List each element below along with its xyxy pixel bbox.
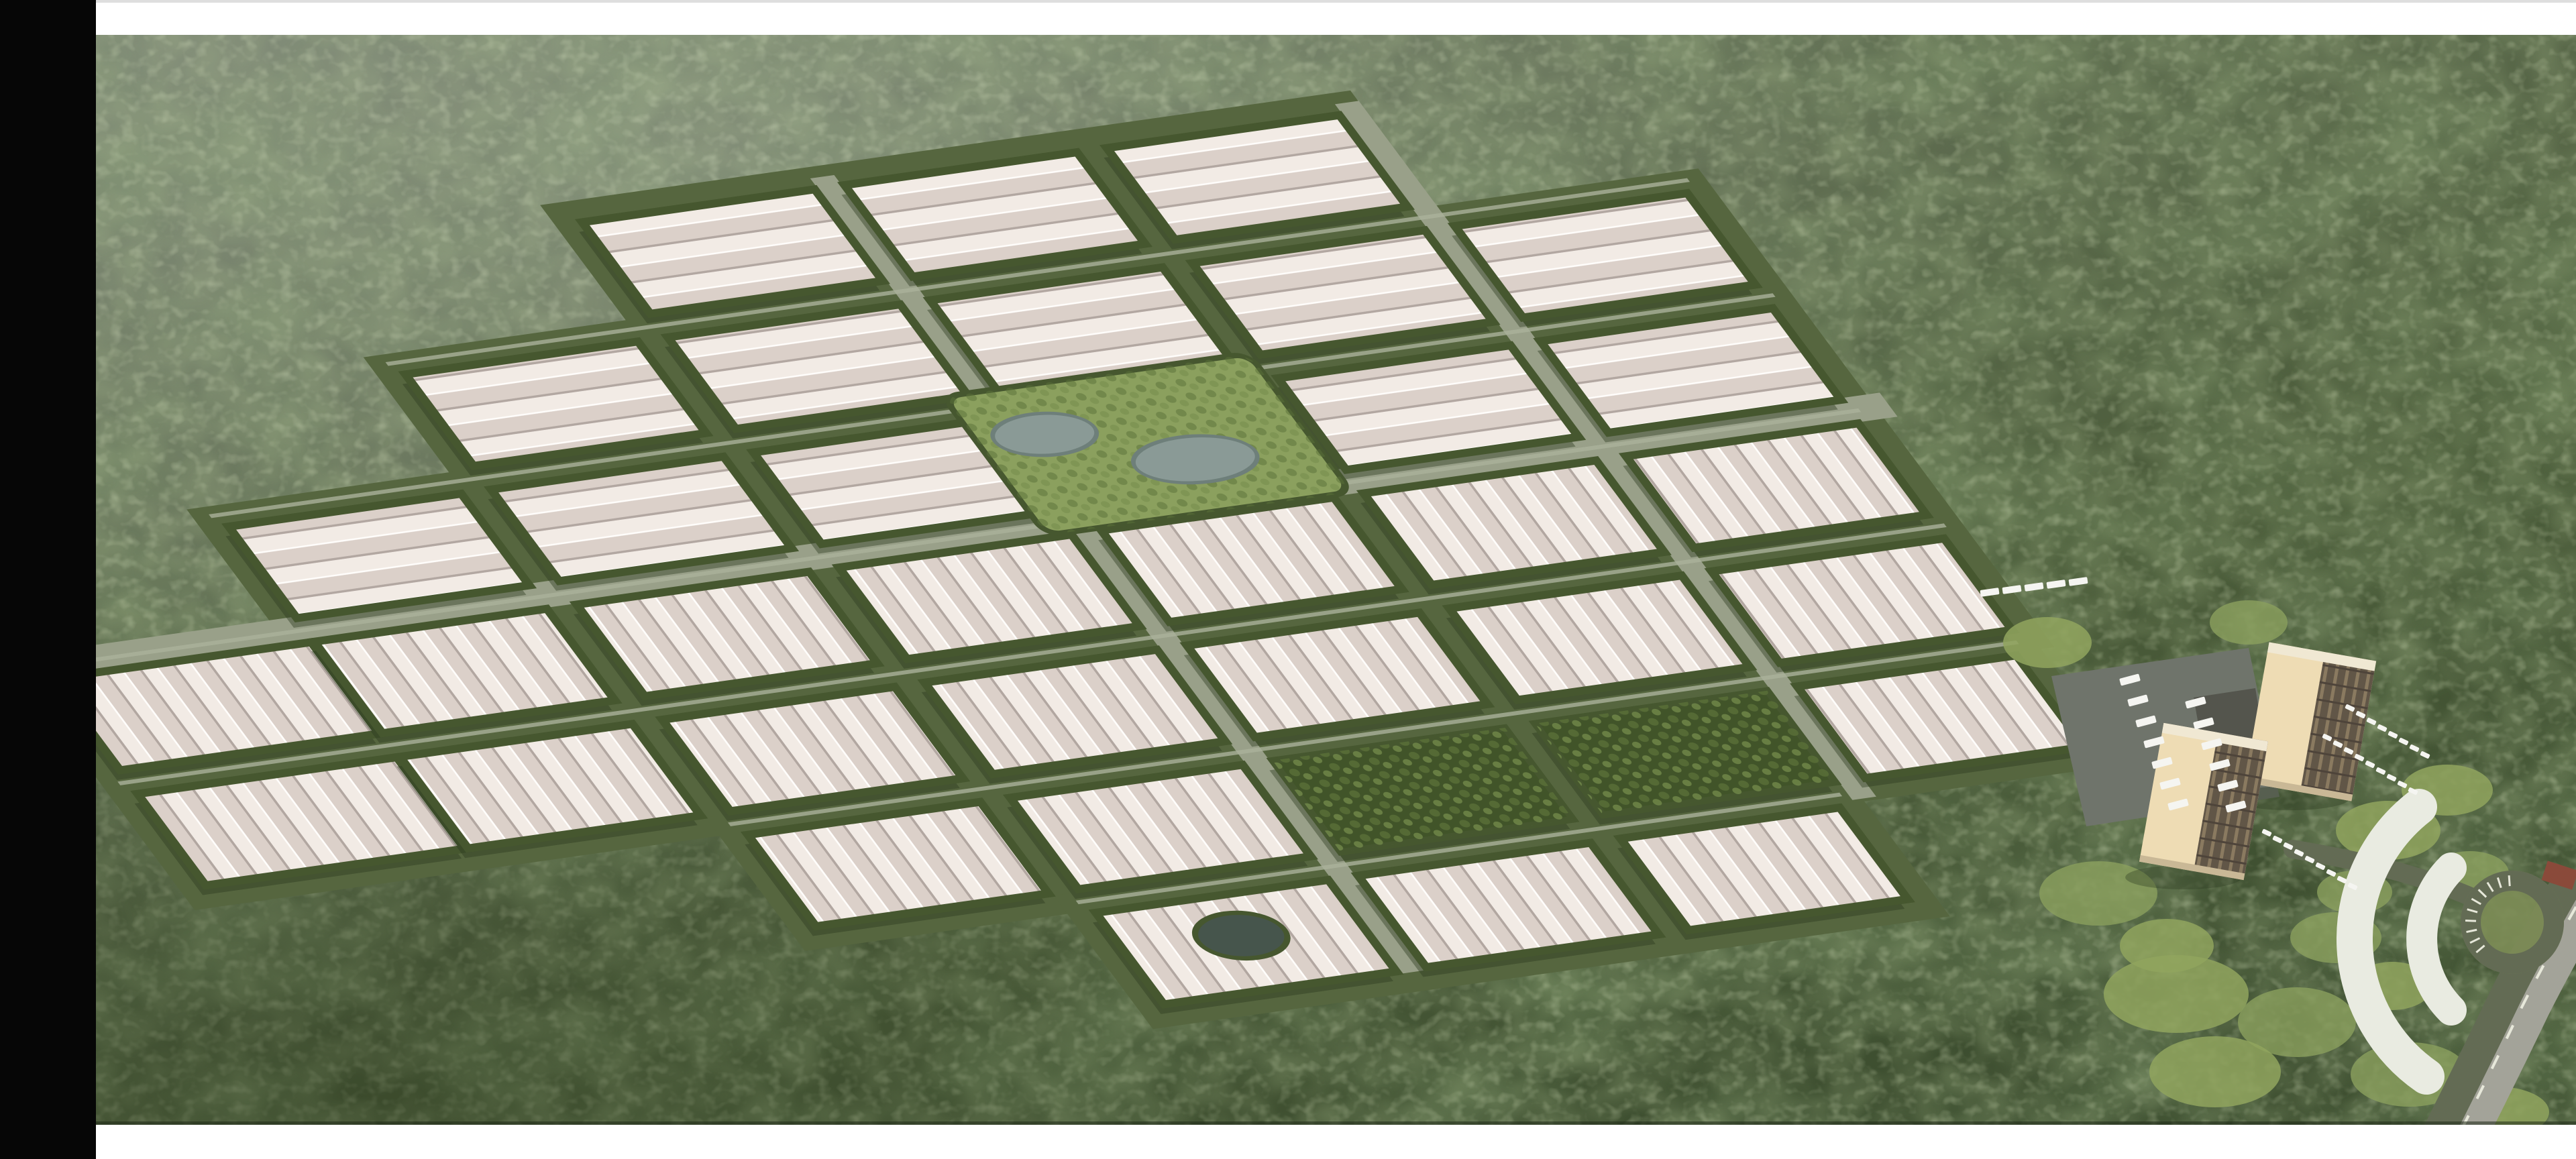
tree-clump xyxy=(2210,600,2288,645)
top-edge-line xyxy=(96,0,2576,3)
tree-clump xyxy=(2003,617,2092,668)
tree-clump xyxy=(2149,1036,2281,1107)
parking-stall-mark xyxy=(2465,920,2476,922)
bottom-white-strip xyxy=(96,1125,2576,1159)
forest-bottom-shadow-line xyxy=(96,1121,2576,1125)
left-black-bar xyxy=(0,0,96,1159)
rendering-stage xyxy=(0,0,2576,1159)
top-white-strip xyxy=(96,0,2576,35)
tree-clump xyxy=(2120,919,2214,973)
aerial-rendering xyxy=(0,0,2576,1159)
